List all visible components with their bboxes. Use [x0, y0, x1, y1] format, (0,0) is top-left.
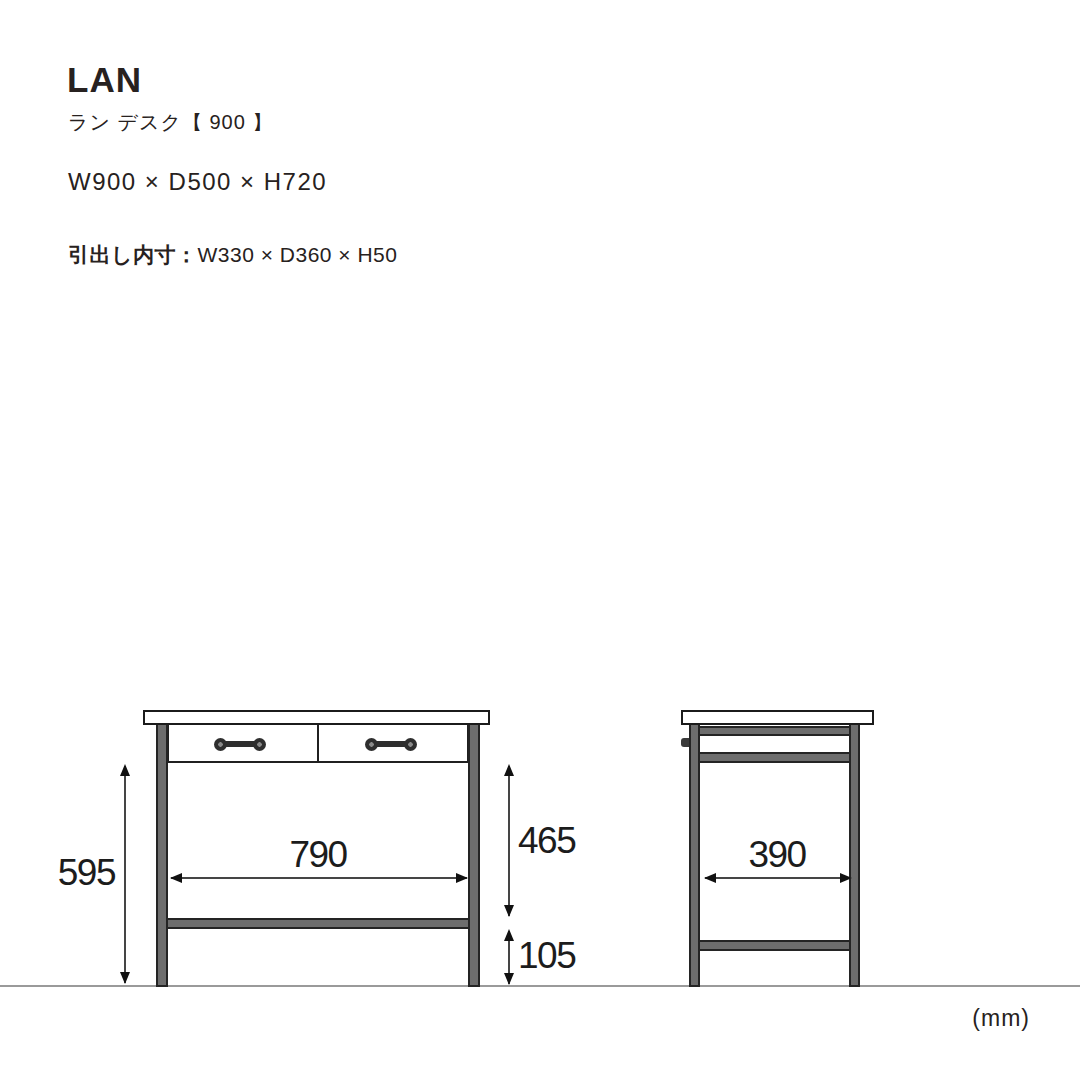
arrowhead-up: [504, 929, 514, 941]
front-right-leg: [468, 723, 480, 987]
dim-line-790: [171, 877, 467, 879]
arrowhead-up: [120, 764, 130, 776]
side-upper-rail: [698, 726, 852, 736]
arrowhead-right: [456, 873, 468, 883]
front-left-leg: [156, 723, 168, 987]
right-drawer-handle-dot: [365, 738, 378, 751]
unit-label: (mm): [972, 1005, 1030, 1032]
spec-sheet: LAN ラン デスク【 900 】 W900 × D500 × H720 引出し…: [0, 0, 1080, 1080]
dim-line-390: [705, 877, 851, 879]
arrowhead-down: [120, 972, 130, 984]
side-drawer-rail: [698, 752, 852, 763]
arrowhead-up: [504, 764, 514, 776]
dim-line-465: [508, 766, 510, 916]
drawer-inner-label: 引出し内寸：: [68, 243, 198, 266]
left-drawer-handle-dot: [253, 738, 266, 751]
drawer-inner-dimensions-text: 引出し内寸：W330 × D360 × H50: [68, 241, 397, 269]
side-left-leg: [689, 723, 700, 987]
left-drawer-handle-dot: [214, 738, 227, 751]
dim-label-595: 595: [35, 854, 115, 891]
dim-label-390: 390: [717, 836, 837, 873]
right-drawer-handle-dot: [404, 738, 417, 751]
side-desk-top: [681, 710, 874, 725]
product-subtitle-japanese: ラン デスク【 900 】: [68, 109, 273, 136]
front-drawer-divider: [317, 723, 319, 763]
dim-label-105: 105: [518, 937, 575, 974]
arrowhead-left: [704, 873, 716, 883]
product-title: LAN: [67, 60, 142, 100]
arrowhead-down: [504, 905, 514, 917]
drawer-inner-value: W330 × D360 × H50: [198, 243, 398, 266]
arrowhead-left: [170, 873, 182, 883]
dim-line-595: [124, 766, 126, 983]
side-right-leg: [849, 723, 860, 987]
dim-label-790: 790: [258, 836, 378, 873]
dim-label-465: 465: [518, 822, 575, 859]
front-desk-top: [143, 710, 490, 725]
side-stretcher: [698, 940, 852, 951]
overall-dimensions-text: W900 × D500 × H720: [68, 168, 327, 196]
arrowhead-down: [504, 973, 514, 985]
front-stretcher: [160, 918, 476, 929]
arrowhead-right: [840, 873, 852, 883]
